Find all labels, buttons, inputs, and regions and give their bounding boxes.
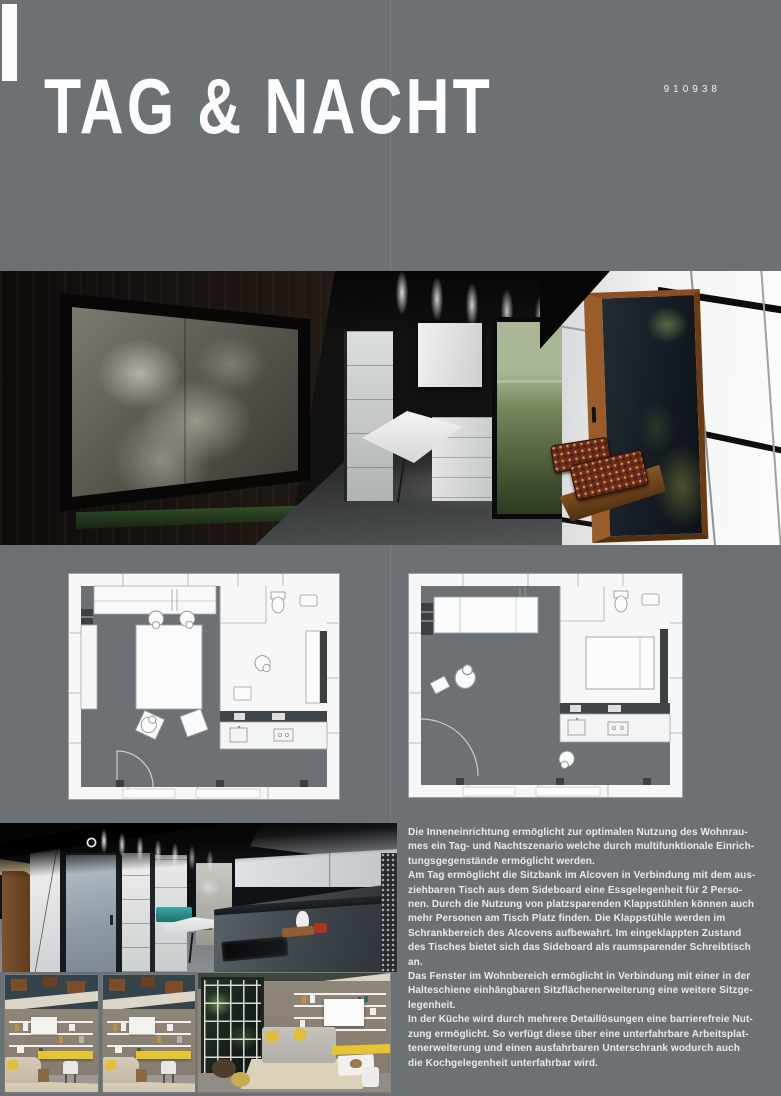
wall-strip xyxy=(660,629,668,703)
window-band xyxy=(463,787,515,796)
floor-plan-night-scenario xyxy=(408,573,683,798)
concrete-panel xyxy=(72,307,298,497)
chair xyxy=(362,1067,379,1087)
folded-bed-cabinet xyxy=(306,631,320,703)
window-handle xyxy=(592,407,597,423)
main-interior-render xyxy=(0,271,781,545)
yellow-pillow xyxy=(265,1030,278,1043)
window-band xyxy=(196,789,260,798)
tv-panel xyxy=(324,999,364,1026)
chair xyxy=(63,1061,78,1074)
wall-cabinet xyxy=(31,1017,57,1034)
dining-table xyxy=(136,625,202,709)
wall-cabinet xyxy=(129,1017,155,1034)
description-paragraph: Die Inneneinrichtung ermöglicht zur opti… xyxy=(408,826,780,1071)
yellow-pillow xyxy=(6,1059,19,1071)
yellow-desk xyxy=(136,1051,191,1059)
yellow-pillow xyxy=(104,1059,117,1071)
yellow-desk xyxy=(38,1051,93,1059)
sink xyxy=(300,595,317,606)
chair xyxy=(161,1061,176,1074)
kitchen-upper-cabinet xyxy=(418,323,482,387)
wall-strip xyxy=(320,631,327,703)
side-table xyxy=(38,1069,49,1082)
reference-photo xyxy=(103,975,195,1092)
side-table xyxy=(136,1069,147,1082)
toilet xyxy=(615,596,627,612)
kitchen-counter xyxy=(220,722,327,749)
page-title: TAG & NACHT xyxy=(44,67,493,145)
pouf xyxy=(231,1072,250,1087)
alcove-bed xyxy=(586,637,654,689)
wardrobe-block xyxy=(421,603,433,635)
reference-photo xyxy=(5,975,98,1092)
corner-bar xyxy=(2,4,17,81)
toilet xyxy=(272,597,284,613)
basket xyxy=(350,1059,362,1069)
ceiling-speaker xyxy=(86,837,97,848)
sliding-door xyxy=(344,331,393,501)
presentation-board: TAG & NACHT 910938 xyxy=(0,0,781,1096)
reference-photo-wide xyxy=(198,973,390,1092)
chair-legs xyxy=(65,1074,67,1083)
window-band xyxy=(536,787,600,796)
detail-interior-render xyxy=(0,823,397,972)
sideboard xyxy=(94,586,216,614)
sink xyxy=(642,594,659,605)
side-table xyxy=(234,687,251,700)
yellow-pillow xyxy=(293,1028,307,1041)
alcove-bench xyxy=(81,625,97,709)
floor-plan-day-scenario xyxy=(68,573,340,800)
project-code: 910938 xyxy=(664,84,721,95)
folded-out-bed xyxy=(434,597,538,633)
chair-legs xyxy=(163,1074,165,1083)
garden-glass-door xyxy=(492,317,572,519)
window-band xyxy=(123,789,175,798)
ceiling-spotlights xyxy=(0,823,397,972)
